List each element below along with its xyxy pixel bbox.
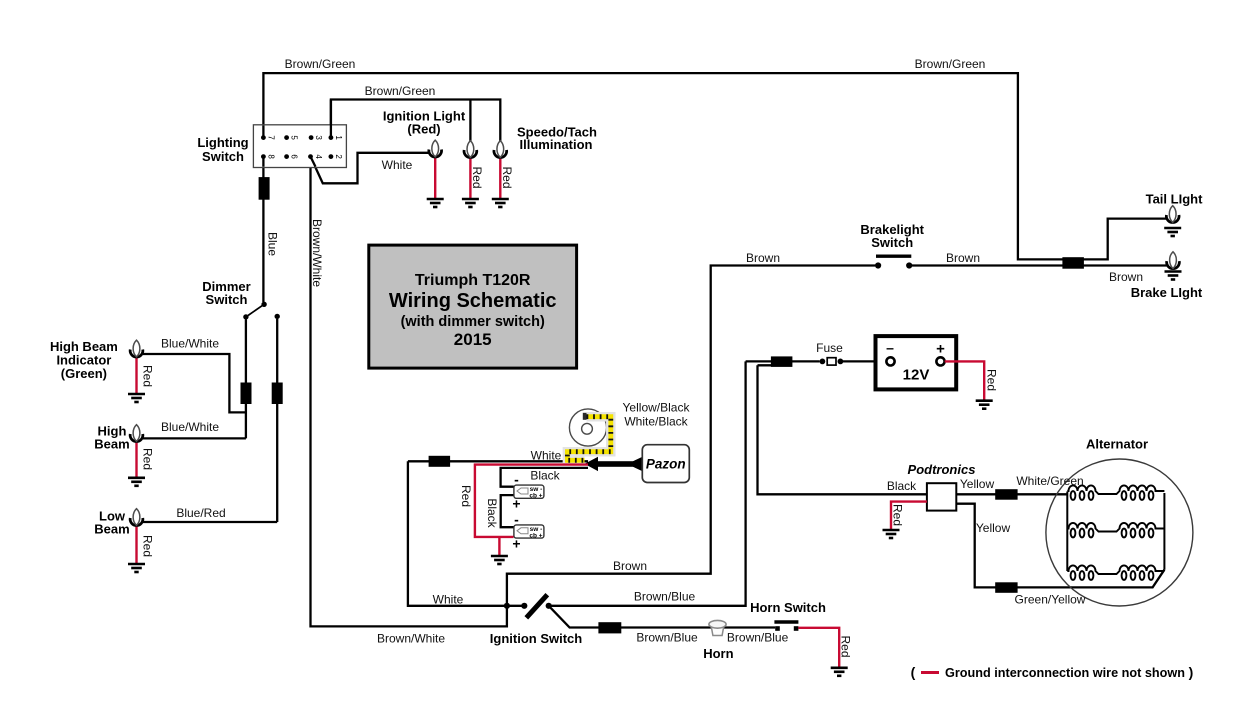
svg-text:Brown: Brown [746,251,780,265]
svg-text:4: 4 [314,154,323,159]
svg-text:Yellow: Yellow [960,477,995,491]
svg-text:Blue: Blue [266,232,280,256]
svg-text:Brown/Green: Brown/Green [915,57,986,71]
svg-text:7: 7 [266,135,275,140]
svg-text:Black: Black [530,469,560,483]
svg-text:Yellow/Black: Yellow/Black [623,401,691,415]
svg-text:Brown: Brown [613,559,647,573]
svg-text:Triumph T120R: Triumph T120R [415,272,531,289]
svg-text:Switch: Switch [202,149,244,164]
svg-text:(: ( [911,664,916,680]
svg-text:+: + [936,341,945,358]
svg-text:Ignition Switch: Ignition Switch [490,631,582,646]
svg-text:cb +: cb + [529,493,542,500]
svg-text:Blue/Red: Blue/Red [176,506,225,520]
svg-text:-: - [514,472,519,488]
svg-text:Red: Red [141,535,155,557]
svg-text:6: 6 [290,154,299,159]
svg-text:White/Black: White/Black [624,415,688,429]
svg-text:5: 5 [290,135,299,140]
svg-text:(Green): (Green) [61,366,107,381]
svg-text:Tail LIght: Tail LIght [1146,192,1203,207]
svg-text:(with dimmer switch): (with dimmer switch) [401,314,545,330]
svg-text:Illumination: Illumination [520,137,593,152]
svg-text:Red: Red [985,369,999,391]
svg-text:Red: Red [459,485,473,507]
svg-text:(Red): (Red) [407,122,440,137]
svg-text:–: – [886,340,894,356]
svg-text:Alternator: Alternator [1086,437,1148,452]
svg-text:Brown/Blue: Brown/Blue [634,590,696,604]
svg-text:Red: Red [141,365,155,387]
svg-text:Fuse: Fuse [816,341,843,355]
svg-text:Switch: Switch [206,292,248,307]
svg-text:White/Green: White/Green [1016,474,1083,488]
svg-text:cb +: cb + [529,532,542,539]
svg-text:Switch: Switch [871,235,913,250]
svg-text:Brown/Green: Brown/Green [285,57,356,71]
svg-text:Red: Red [500,166,514,188]
svg-text:Brown/White: Brown/White [377,632,445,646]
svg-text:Beam: Beam [94,437,129,452]
svg-text:Brake LIght: Brake LIght [1131,285,1203,300]
svg-text:Blue/White: Blue/White [161,337,219,351]
svg-text:Red: Red [141,448,155,470]
svg-text:White: White [433,593,464,607]
svg-text:Horn: Horn [703,646,733,661]
svg-text:Podtronics: Podtronics [908,462,976,477]
svg-text:8: 8 [266,154,275,159]
svg-text:Brown/Blue: Brown/Blue [727,631,789,645]
svg-text:-: - [514,511,519,527]
svg-text:1: 1 [334,135,343,140]
svg-text:Green/Yellow: Green/Yellow [1015,593,1086,607]
svg-text:Wiring Schematic: Wiring Schematic [389,290,557,312]
svg-text:): ) [1189,664,1194,680]
svg-text:Black: Black [887,479,917,493]
svg-text:Brown/Green: Brown/Green [365,84,436,98]
svg-text:Brown: Brown [1109,270,1143,284]
svg-text:Blue/White: Blue/White [161,420,219,434]
svg-text:Horn Switch: Horn Switch [750,600,826,615]
svg-text:Brown/Blue: Brown/Blue [636,631,698,645]
svg-text:Red: Red [470,166,484,188]
svg-text:White: White [382,158,413,172]
svg-text:Beam: Beam [94,522,129,537]
svg-text:+: + [512,535,520,551]
svg-text:+: + [512,496,520,512]
svg-text:Brown/White: Brown/White [310,219,324,287]
svg-text:Brown: Brown [946,251,980,265]
svg-text:Red: Red [891,504,905,526]
svg-text:12V: 12V [903,367,930,384]
svg-text:White: White [531,449,562,463]
svg-text:Yellow: Yellow [976,521,1011,535]
svg-text:Red: Red [839,635,853,657]
svg-text:Ground interconnection wire no: Ground interconnection wire not shown [945,665,1185,680]
svg-text:2015: 2015 [454,330,492,349]
svg-text:Pazon: Pazon [646,457,686,472]
svg-text:Black: Black [485,498,499,528]
svg-text:3: 3 [314,135,323,140]
svg-text:Lighting: Lighting [197,135,248,150]
svg-text:2: 2 [334,154,343,159]
